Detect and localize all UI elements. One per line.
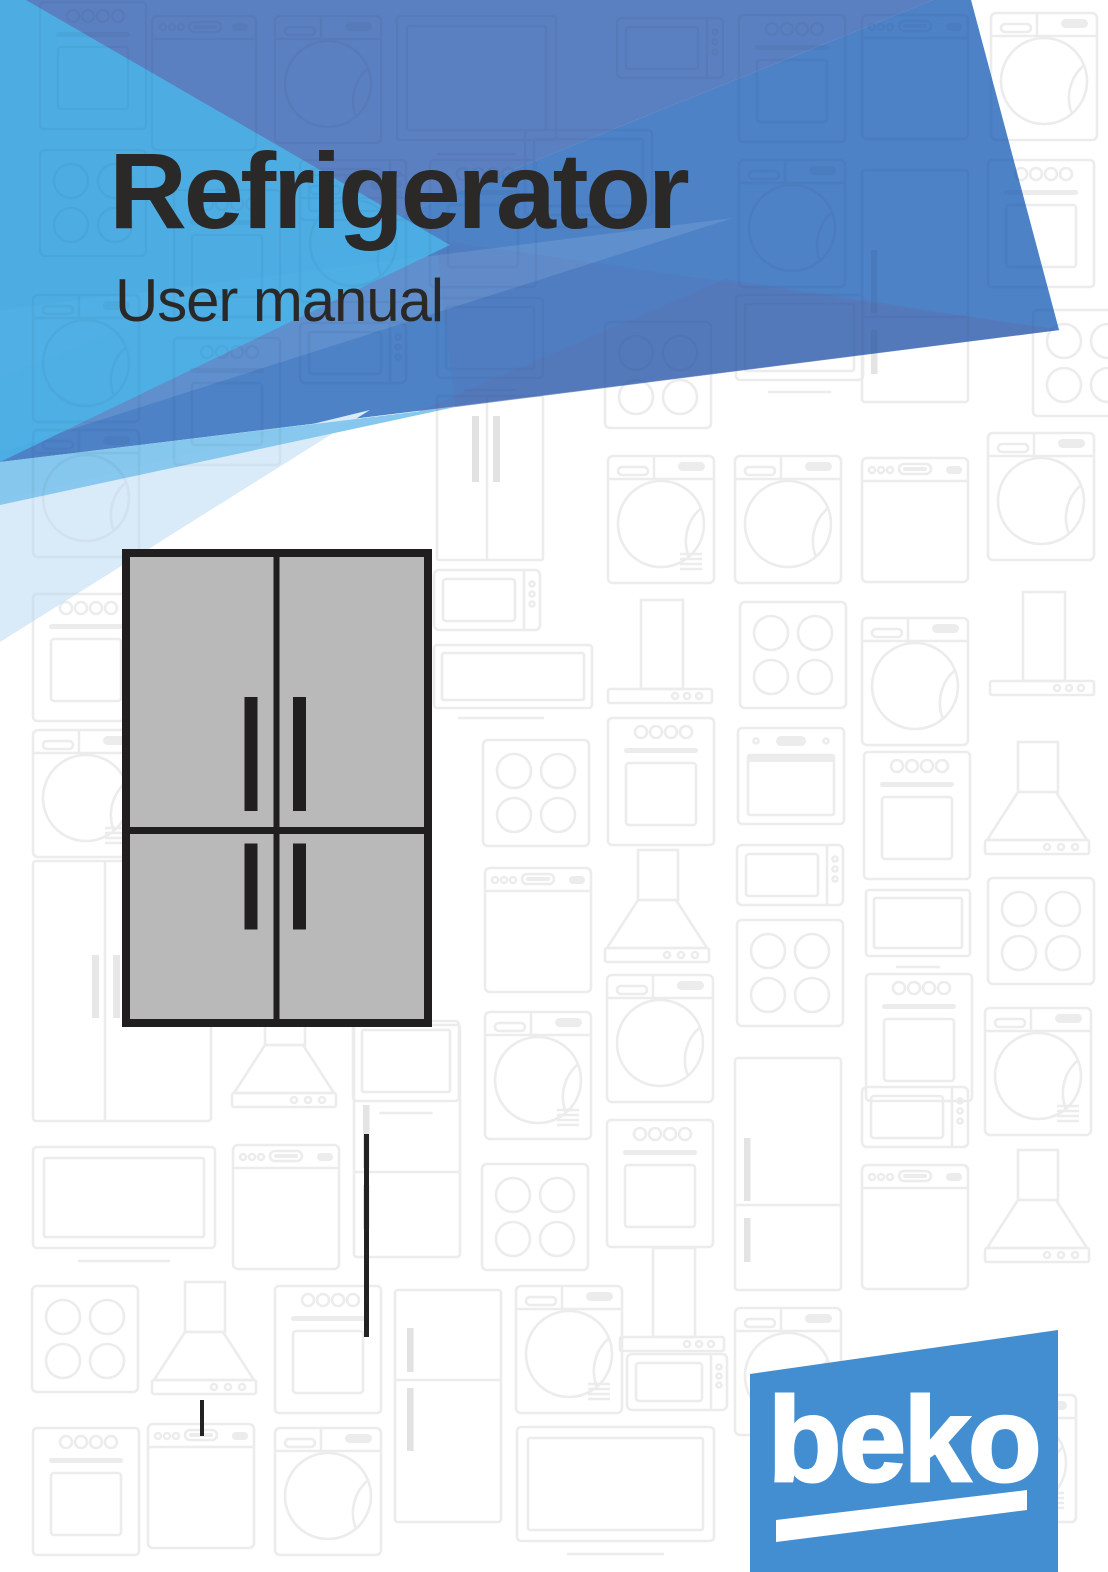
svg-text:beko: beko (768, 1373, 1039, 1507)
